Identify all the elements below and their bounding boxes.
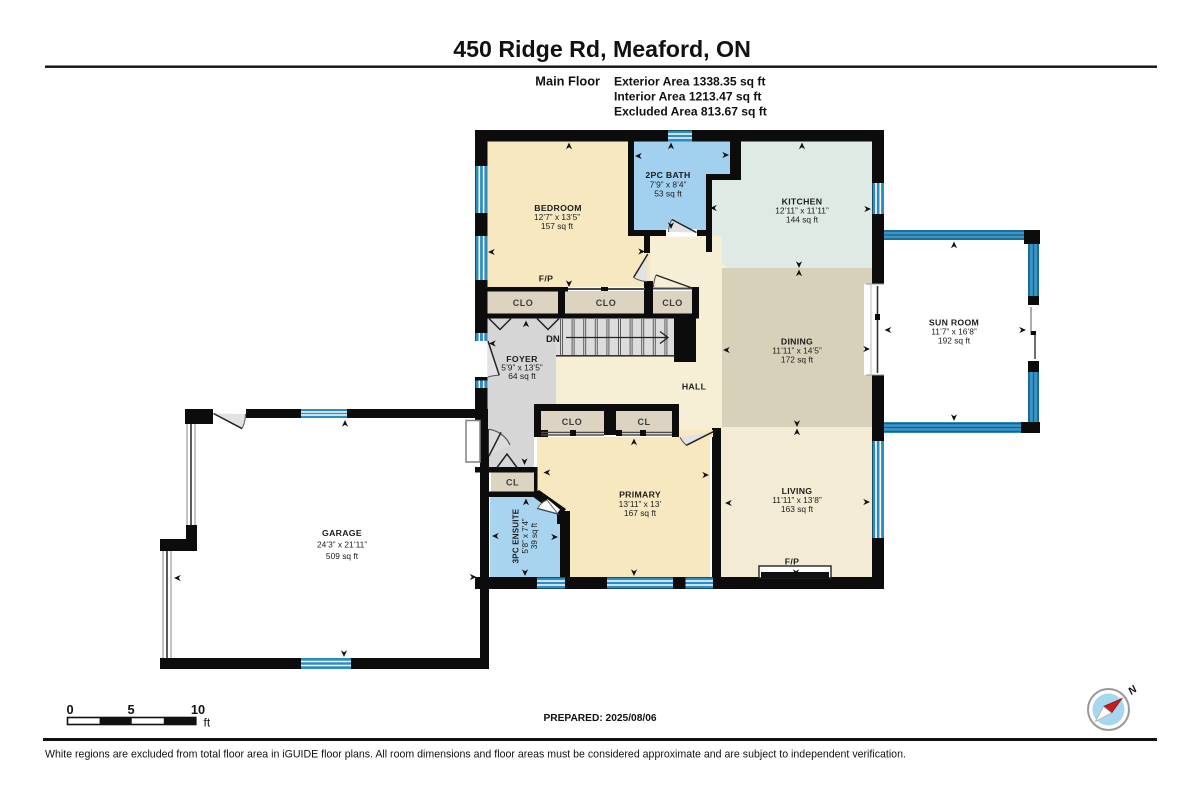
svg-text:CLO: CLO bbox=[596, 298, 617, 308]
svg-text:Main Floor: Main Floor bbox=[535, 74, 600, 89]
svg-text:509 sq ft: 509 sq ft bbox=[326, 551, 359, 561]
svg-text:Excluded Area 813.67 sq ft: Excluded Area 813.67 sq ft bbox=[614, 105, 767, 119]
svg-text:CL: CL bbox=[638, 417, 651, 427]
svg-text:CLO: CLO bbox=[513, 298, 534, 308]
svg-text:White regions are excluded fro: White regions are excluded from total fl… bbox=[45, 749, 906, 761]
svg-text:24’3” x 21’11”: 24’3” x 21’11” bbox=[317, 540, 367, 550]
svg-text:CLO: CLO bbox=[662, 298, 683, 308]
svg-text:GARAGE: GARAGE bbox=[322, 528, 362, 538]
svg-text:Exterior Area 1338.35 sq ft: Exterior Area 1338.35 sq ft bbox=[614, 75, 765, 89]
svg-text:192 sq ft: 192 sq ft bbox=[938, 336, 971, 346]
svg-text:167 sq ft: 167 sq ft bbox=[624, 508, 657, 518]
svg-text:DN: DN bbox=[546, 334, 560, 345]
svg-text:163 sq ft: 163 sq ft bbox=[781, 504, 814, 514]
svg-text:3PC ENSUITE: 3PC ENSUITE bbox=[512, 508, 521, 563]
svg-text:CL: CL bbox=[506, 478, 519, 488]
svg-text:157 sq ft: 157 sq ft bbox=[541, 221, 574, 231]
svg-text:F/P: F/P bbox=[539, 274, 553, 284]
svg-text:172 sq ft: 172 sq ft bbox=[781, 355, 814, 365]
svg-text:PREPARED: 2025/08/06: PREPARED: 2025/08/06 bbox=[543, 713, 656, 724]
svg-text:64 sq ft: 64 sq ft bbox=[508, 371, 536, 381]
svg-text:2PC BATH: 2PC BATH bbox=[645, 170, 690, 180]
svg-text:39 sq ft: 39 sq ft bbox=[530, 522, 539, 549]
svg-text:HALL: HALL bbox=[682, 382, 707, 392]
svg-text:CLO: CLO bbox=[562, 417, 583, 427]
svg-text:F/P: F/P bbox=[785, 557, 799, 567]
svg-text:ft: ft bbox=[204, 716, 211, 730]
svg-text:Interior Area 1213.47 sq ft: Interior Area 1213.47 sq ft bbox=[614, 90, 761, 104]
svg-text:5’8” x 7’4”: 5’8” x 7’4” bbox=[521, 518, 530, 553]
svg-text:144 sq ft: 144 sq ft bbox=[786, 215, 819, 225]
svg-text:5: 5 bbox=[127, 702, 134, 717]
svg-text:450 Ridge Rd, Meaford, ON: 450 Ridge Rd, Meaford, ON bbox=[453, 36, 751, 62]
svg-text:53 sq ft: 53 sq ft bbox=[654, 189, 682, 199]
svg-text:0: 0 bbox=[66, 702, 73, 717]
svg-text:PRIMARY: PRIMARY bbox=[619, 490, 661, 500]
